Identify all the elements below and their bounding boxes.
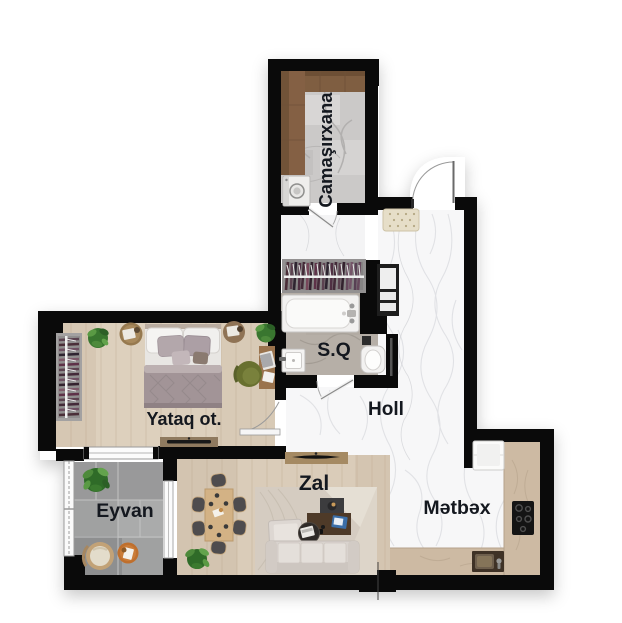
svg-text:Zal: Zal — [299, 472, 329, 495]
svg-text:Mətbəx: Mətbəx — [423, 497, 490, 519]
svg-text:S.Q: S.Q — [317, 339, 351, 361]
svg-text:Holl: Holl — [368, 399, 404, 420]
svg-text:Camaşırxana: Camaşırxana — [315, 92, 336, 208]
svg-text:Eyvan: Eyvan — [96, 500, 153, 522]
svg-text:Yataq ot.: Yataq ot. — [146, 409, 221, 429]
